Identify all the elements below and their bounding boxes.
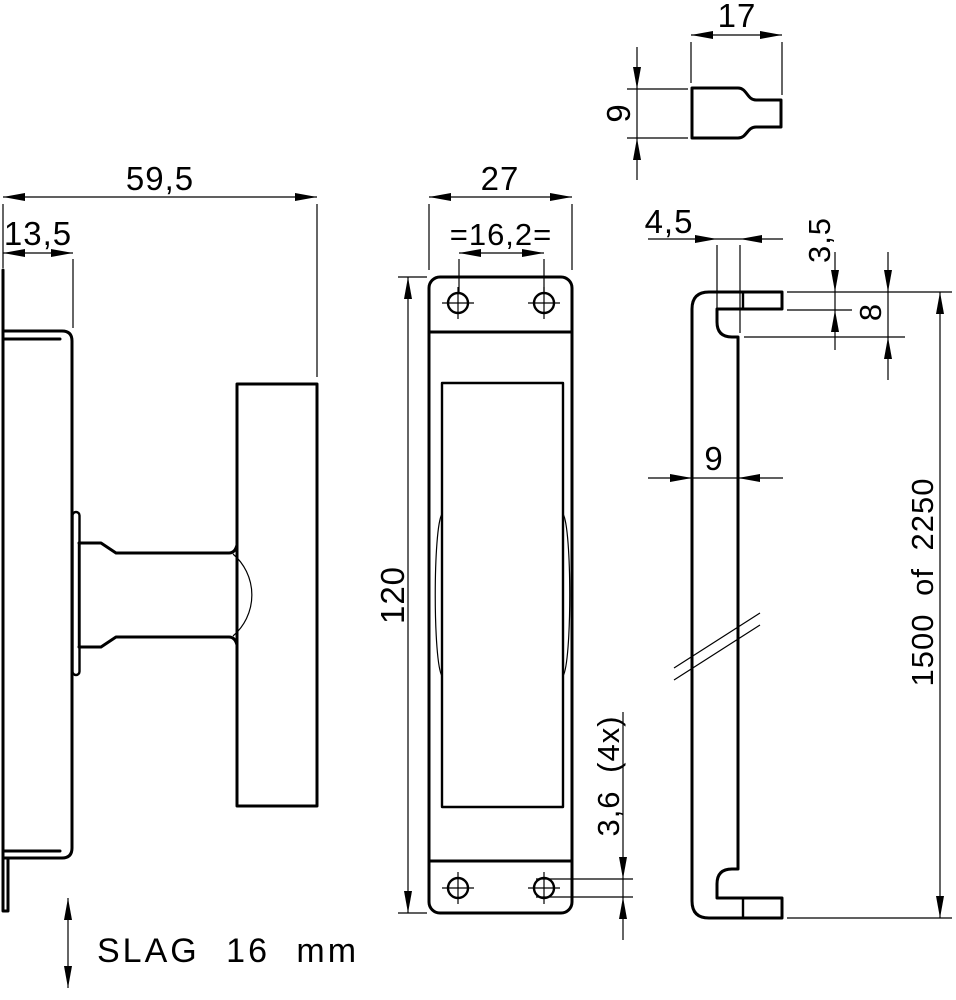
pin-detail-view: 17 9	[600, 0, 782, 180]
break-lines	[674, 613, 760, 680]
dim-width: 27	[481, 160, 520, 197]
arrowhead	[670, 474, 692, 482]
ext-line	[717, 245, 740, 333]
front-view	[429, 277, 572, 913]
arrowhead	[738, 474, 760, 482]
side-view	[3, 270, 317, 911]
pin-outline	[692, 88, 781, 138]
rod-edge-profile	[3, 270, 8, 911]
dim-hook-height: 8	[853, 303, 888, 321]
arrowhead	[550, 193, 572, 201]
dim-pin-width: 9	[600, 103, 637, 122]
arrowhead	[619, 897, 627, 919]
dim-hole-pitch: =16,2=	[450, 217, 553, 252]
dim-hook-offset: 4,5	[645, 203, 694, 240]
arrowhead	[936, 896, 944, 918]
arrowhead	[884, 337, 892, 359]
arrowhead	[295, 193, 317, 201]
screw-hole	[442, 287, 474, 319]
arrowhead	[760, 31, 782, 39]
side-view-dimensions: 59,5 13,5 SLAG 16 mm	[3, 160, 359, 988]
stem-top-edge	[79, 543, 237, 553]
stem-bottom-edge	[79, 637, 237, 647]
case-outline	[3, 331, 72, 858]
dim-rod-width: 9	[704, 440, 723, 477]
handle-bar	[237, 384, 317, 806]
dim-overall-depth: 59,5	[126, 160, 194, 197]
arrowhead	[831, 270, 839, 292]
dim-rod-length: 1500 of 2250	[905, 477, 940, 686]
arrowhead	[691, 31, 713, 39]
dim-height: 120	[374, 566, 411, 624]
arrowhead	[695, 235, 717, 243]
arrowhead	[64, 898, 72, 920]
arrowhead	[429, 193, 451, 201]
arrowhead	[740, 235, 762, 243]
arrowhead	[633, 138, 641, 160]
rod-outline	[692, 292, 782, 918]
arrowhead	[831, 310, 839, 332]
stroke-note: SLAG 16 mm	[97, 932, 359, 970]
arrowhead	[404, 277, 412, 299]
arrowhead	[936, 292, 944, 314]
arrowhead	[3, 193, 25, 201]
screw-hole	[528, 872, 560, 904]
arrowhead	[884, 270, 892, 292]
dim-hole-diameter: 3,6 (4x)	[591, 715, 626, 836]
drawing-canvas: 59,5 13,5 SLAG 16 mm	[0, 0, 956, 1000]
dim-case-depth: 13,5	[4, 215, 72, 252]
dim-lip-thickness: 3,5	[802, 217, 837, 263]
arrowhead	[404, 891, 412, 913]
arrowhead	[633, 67, 641, 89]
slide-window	[442, 383, 563, 807]
arrowhead	[619, 857, 627, 879]
dim-pin-length: 17	[718, 0, 757, 34]
faceplate-outline	[429, 277, 572, 913]
rod-view	[674, 292, 782, 918]
screw-hole	[442, 872, 474, 904]
arrowhead	[64, 966, 72, 988]
technical-drawing: 59,5 13,5 SLAG 16 mm	[0, 0, 956, 1000]
